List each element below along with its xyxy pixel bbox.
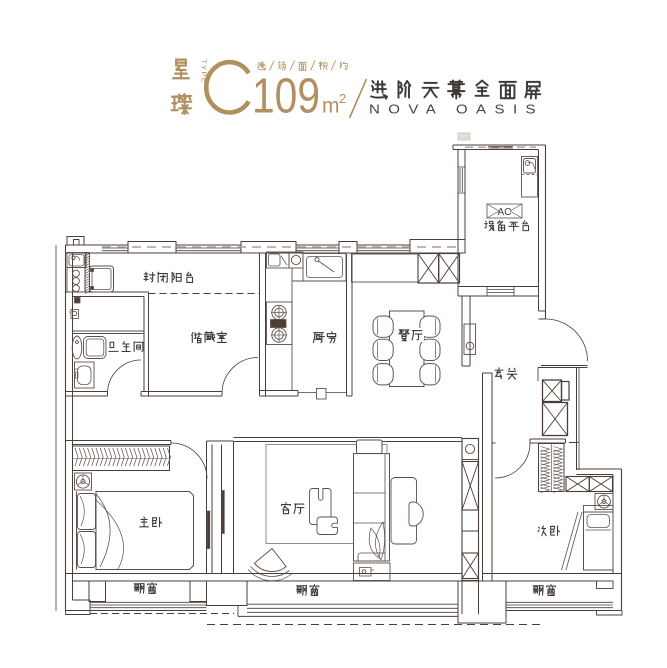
svg-text:m: m bbox=[322, 95, 340, 118]
svg-text:AC: AC bbox=[498, 207, 512, 218]
svg-text:2: 2 bbox=[339, 91, 346, 106]
svg-text:109: 109 bbox=[252, 70, 320, 124]
svg-text:NOVA OASIS: NOVA OASIS bbox=[369, 103, 544, 117]
